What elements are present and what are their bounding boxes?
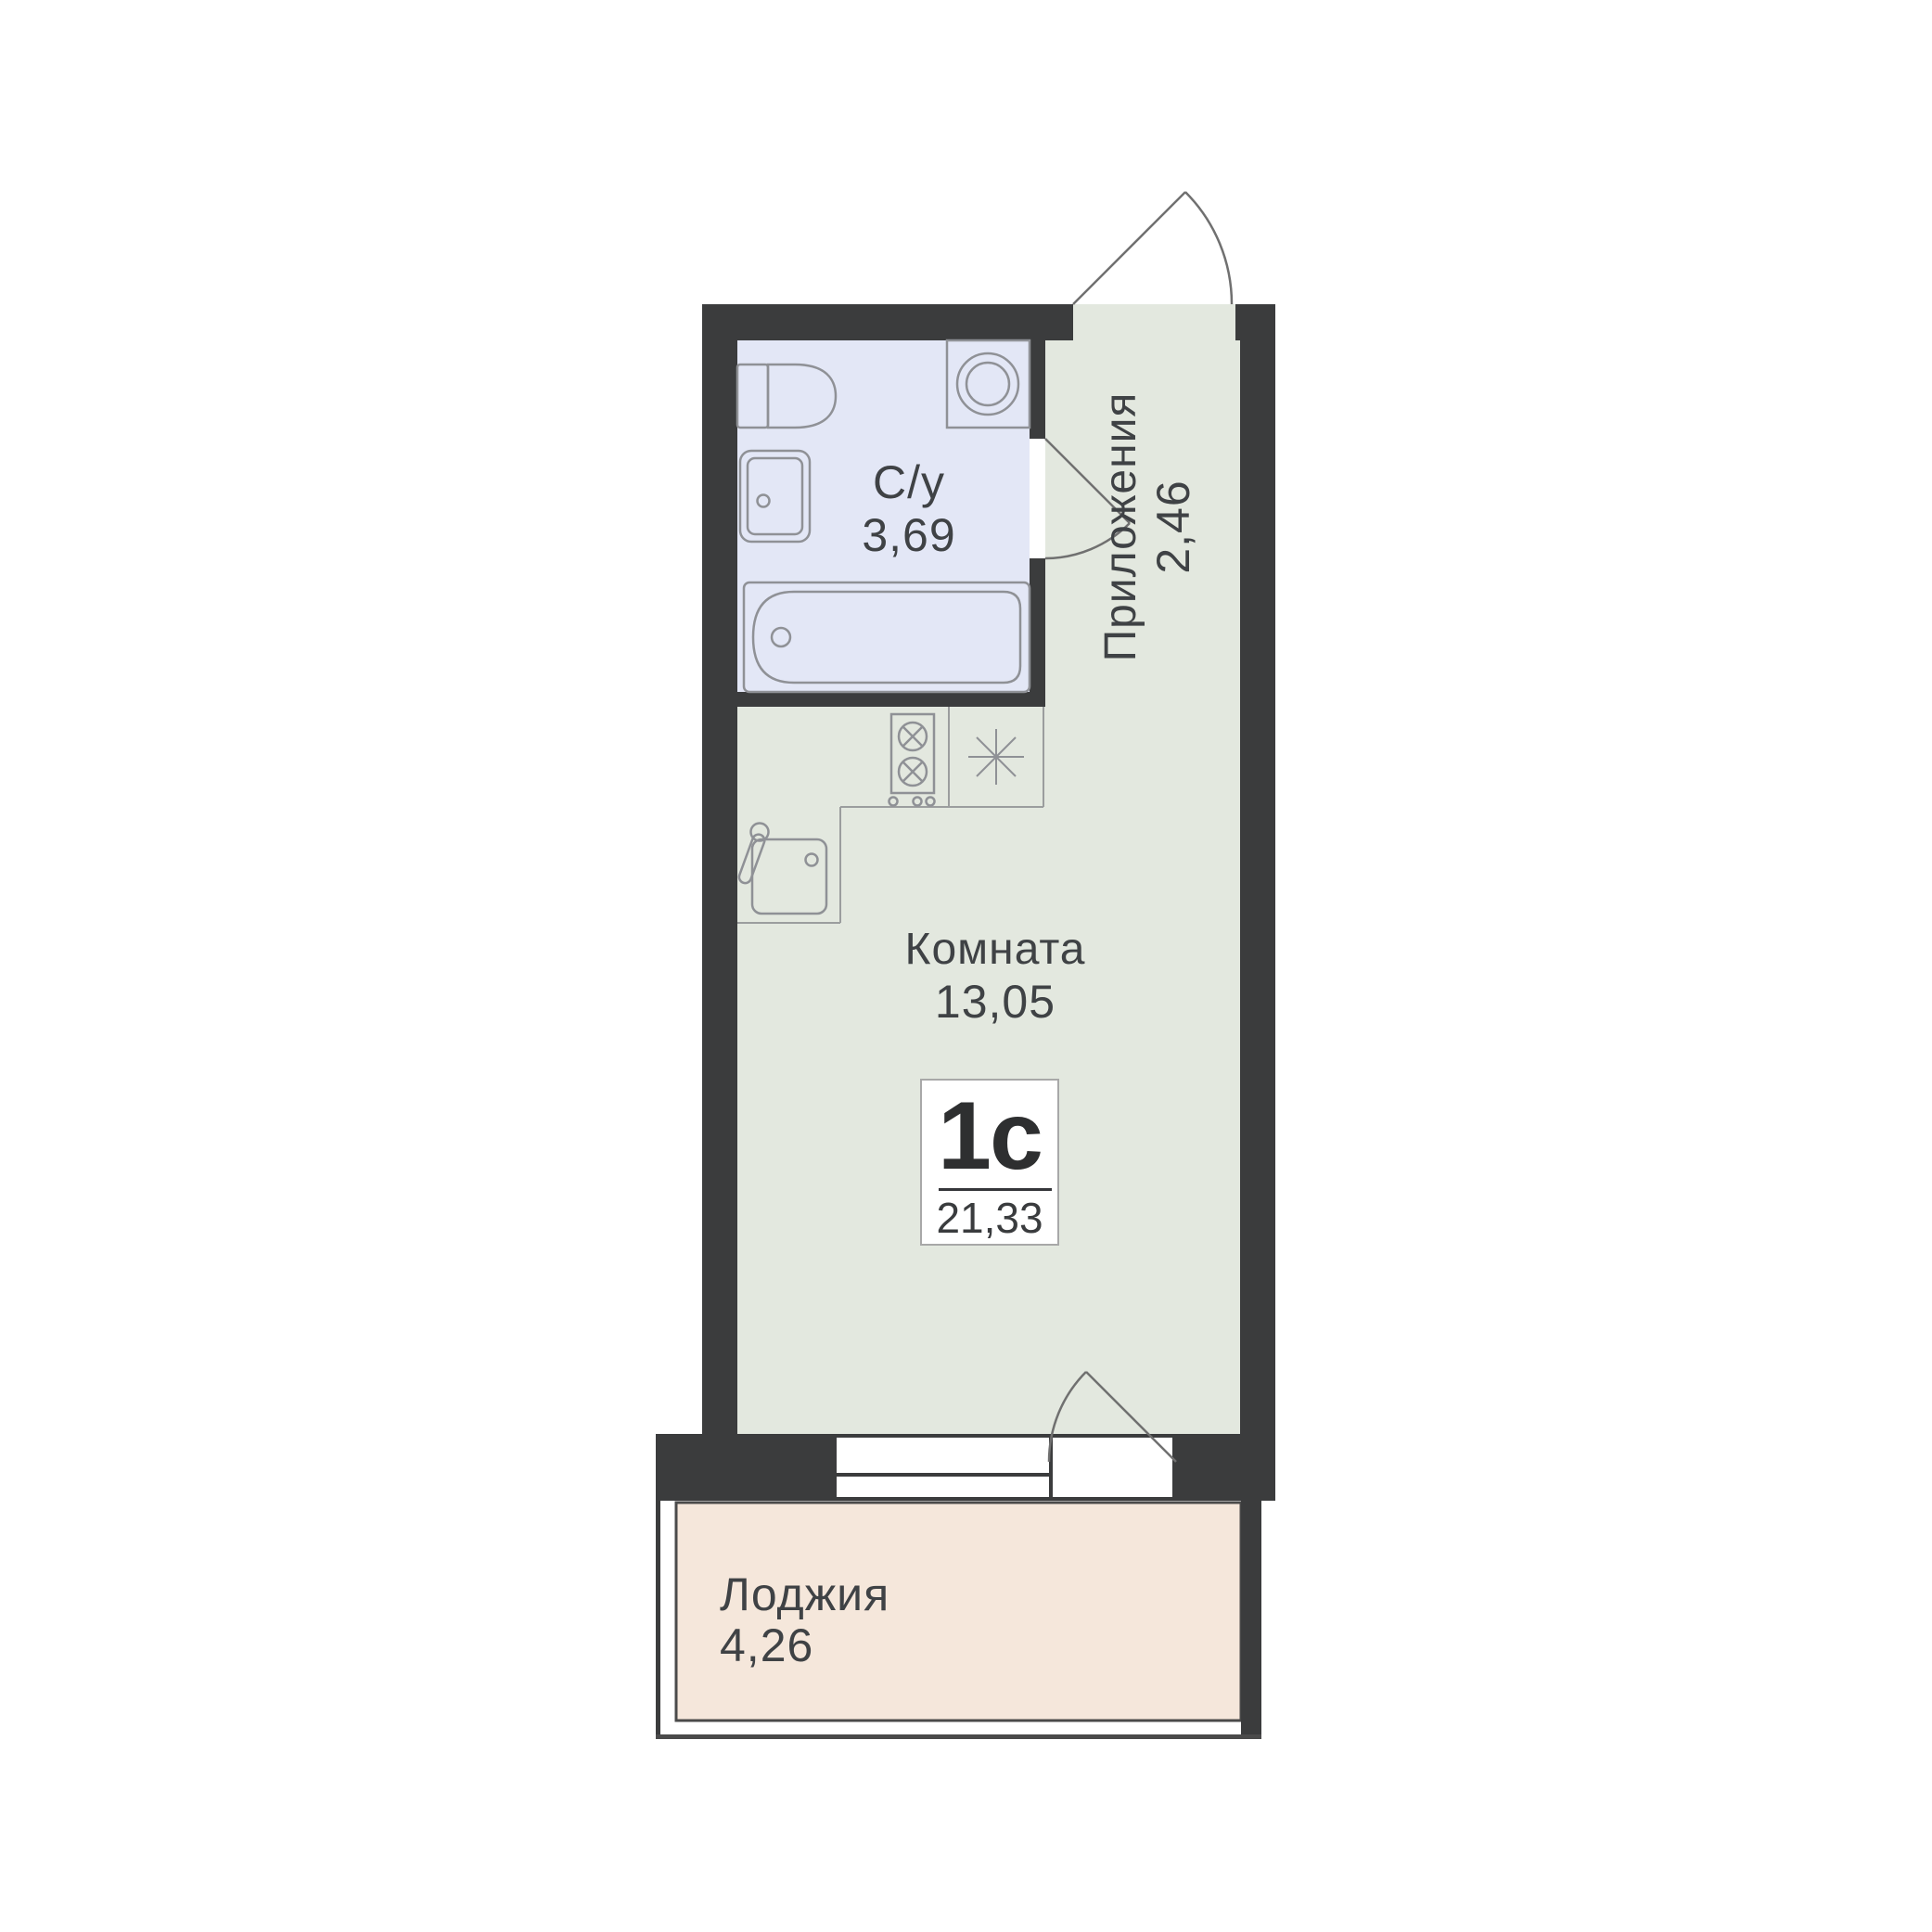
balcony-door-jamb [1172, 1434, 1176, 1501]
apartment-type: 1с [922, 1081, 1057, 1188]
window-band [837, 1434, 1176, 1501]
bathroom-label: С/у 3,69 [862, 456, 955, 562]
hallway-area: 2,46 [1147, 392, 1199, 662]
entry-opening-floor [1073, 304, 1235, 341]
vent-asterisk-icon [968, 729, 1024, 785]
loggia-label: Лоджия 4,26 [720, 1569, 889, 1671]
loggia-name: Лоджия [720, 1569, 889, 1620]
bathroom-area: 3,69 [862, 509, 955, 562]
loggia-area: 4,26 [720, 1620, 889, 1671]
window-opening [837, 1434, 1176, 1501]
wall-loggia-right [1241, 1501, 1261, 1739]
apartment-total-area: 21,33 [922, 1191, 1057, 1244]
window-frame-top [837, 1434, 1176, 1438]
floor-plan-canvas: С/у 3,69 Приложения 2,46 Комната 13,05 Л… [0, 0, 1932, 1932]
wall-bathroom-bottom [737, 692, 1045, 707]
loggia-outline-bottom [656, 1734, 1261, 1739]
wall-bathroom-right-upper [1030, 340, 1045, 439]
hallway-name: Приложения [1095, 392, 1147, 662]
loggia-outline-left [656, 1434, 660, 1739]
wall-bathroom-right-lower [1030, 558, 1045, 707]
window-frame-bottom [837, 1497, 1176, 1501]
living-room-floor [735, 707, 1240, 1434]
hallway-label: Приложения 2,46 [1095, 392, 1199, 662]
bathroom-name: С/у [862, 456, 955, 509]
entrance-door-arc [1185, 192, 1232, 304]
wall-bottom-left-block [657, 1434, 837, 1501]
window-frame-middle [837, 1473, 1051, 1477]
entrance-door-leaf [1073, 192, 1185, 304]
living-room-label: Комната 13,05 [905, 923, 1086, 1029]
living-room-name: Комната [905, 923, 1086, 976]
entrance-door-icon [1073, 192, 1232, 304]
apartment-type-badge: 1с 21,33 [920, 1079, 1059, 1246]
living-room-area: 13,05 [905, 976, 1086, 1029]
